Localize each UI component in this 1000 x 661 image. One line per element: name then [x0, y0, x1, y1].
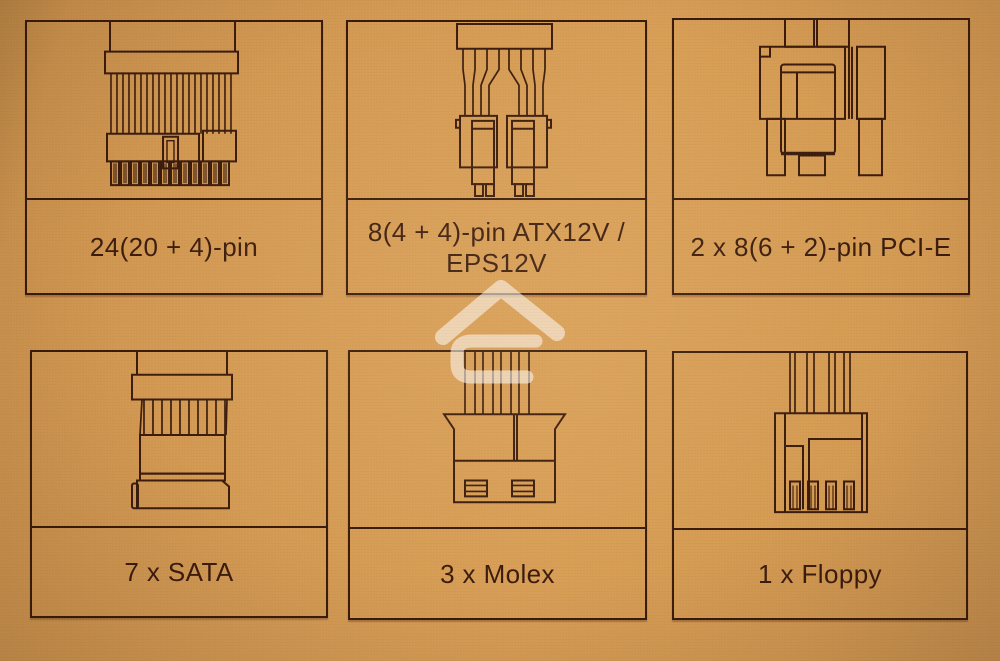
- sata-connector-icon: [32, 352, 326, 526]
- cell-floppy: 1 x Floppy: [672, 351, 968, 620]
- label-sata: 7 x SATA: [32, 529, 326, 616]
- drawing-molex: [350, 352, 645, 529]
- cell-eps: 8(4 + 4)-pin ATX12V / EPS12V: [346, 20, 647, 295]
- eps-8pin-connector-icon: [348, 22, 645, 198]
- manual-page: { "palette": { "bg": "#d2994f", "ink": "…: [0, 0, 1000, 661]
- label-pcie: 2 x 8(6 + 2)-pin PCI-E: [674, 202, 968, 293]
- floppy-connector-icon: [674, 353, 966, 528]
- label-24pin-line1: 24(20 + 4)-pin: [90, 232, 258, 263]
- label-eps-line1: 8(4 + 4)-pin ATX12V /: [368, 217, 625, 248]
- label-floppy: 1 x Floppy: [674, 531, 966, 618]
- label-eps-line2: EPS12V: [446, 248, 547, 279]
- label-molex: 3 x Molex: [350, 531, 645, 618]
- label-pcie-line1: 2 x 8(6 + 2)-pin PCI-E: [691, 232, 952, 263]
- drawing-24pin: [27, 22, 321, 200]
- cell-molex: 3 x Molex: [348, 350, 647, 620]
- drawing-sata: [32, 352, 326, 528]
- molex-connector-icon: [350, 352, 645, 527]
- drawing-pcie: [674, 20, 968, 200]
- cell-24pin: 24(20 + 4)-pin: [25, 20, 323, 295]
- label-24pin: 24(20 + 4)-pin: [27, 202, 321, 293]
- cell-pcie: 2 x 8(6 + 2)-pin PCI-E: [672, 18, 970, 295]
- drawing-eps: [348, 22, 645, 200]
- label-eps: 8(4 + 4)-pin ATX12V / EPS12V: [348, 202, 645, 293]
- pcie-8pin-connector-icon: [674, 20, 968, 198]
- cell-sata: 7 x SATA: [30, 350, 328, 618]
- watermark-roof: [443, 288, 557, 337]
- atx-24pin-connector-icon: [27, 22, 321, 198]
- label-molex-line1: 3 x Molex: [440, 559, 555, 590]
- label-sata-line1: 7 x SATA: [124, 557, 233, 588]
- drawing-floppy: [674, 353, 966, 530]
- label-floppy-line1: 1 x Floppy: [758, 559, 882, 590]
